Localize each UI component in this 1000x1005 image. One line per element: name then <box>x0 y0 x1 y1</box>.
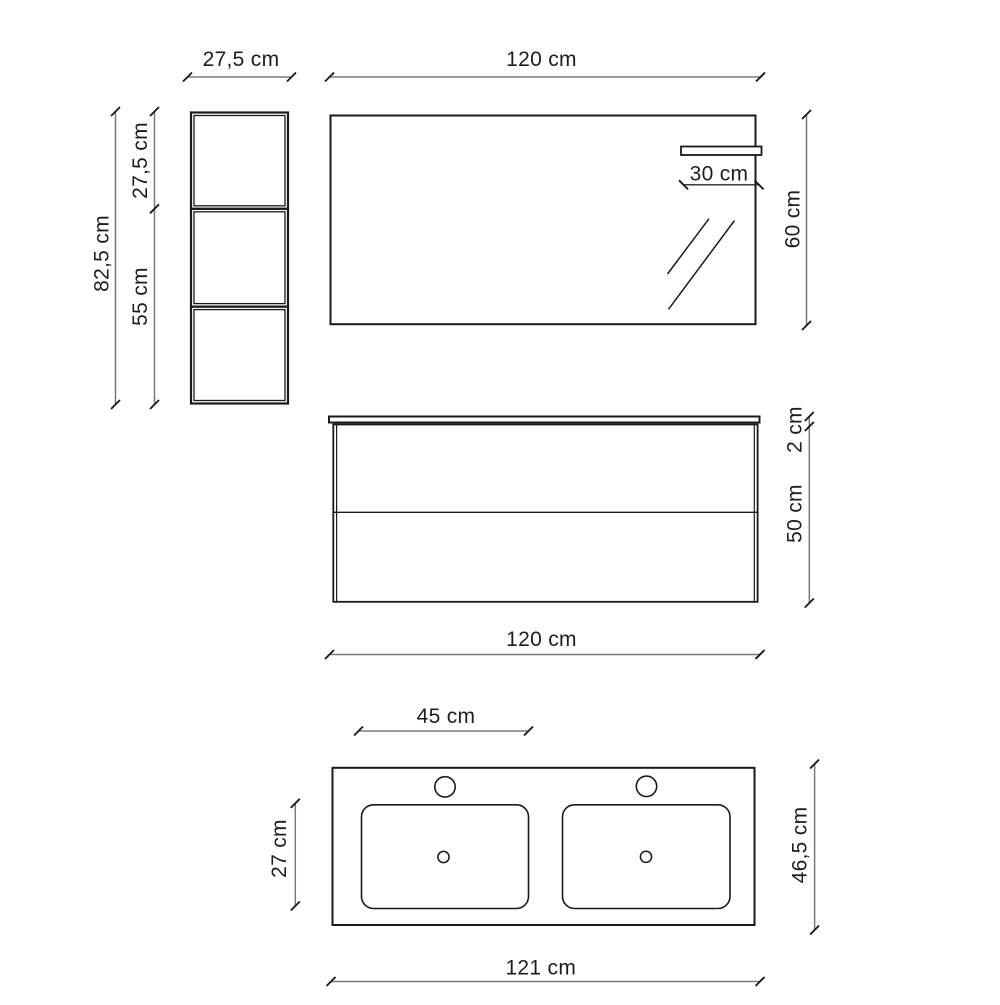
svg-text:27,5 cm: 27,5 cm <box>129 122 152 199</box>
svg-text:120 cm: 120 cm <box>506 48 577 71</box>
svg-text:45 cm: 45 cm <box>417 705 476 728</box>
svg-text:82,5 cm: 82,5 cm <box>91 215 114 292</box>
svg-text:27 cm: 27 cm <box>268 819 291 878</box>
svg-text:120 cm: 120 cm <box>506 628 577 651</box>
svg-text:55 cm: 55 cm <box>129 267 152 326</box>
svg-text:60 cm: 60 cm <box>782 190 805 249</box>
svg-text:30 cm: 30 cm <box>690 163 749 186</box>
svg-text:2 cm: 2 cm <box>784 406 807 453</box>
svg-text:50 cm: 50 cm <box>784 484 807 543</box>
svg-text:121 cm: 121 cm <box>505 957 576 980</box>
svg-text:27,5 cm: 27,5 cm <box>203 48 280 71</box>
svg-text:46,5 cm: 46,5 cm <box>789 807 812 884</box>
